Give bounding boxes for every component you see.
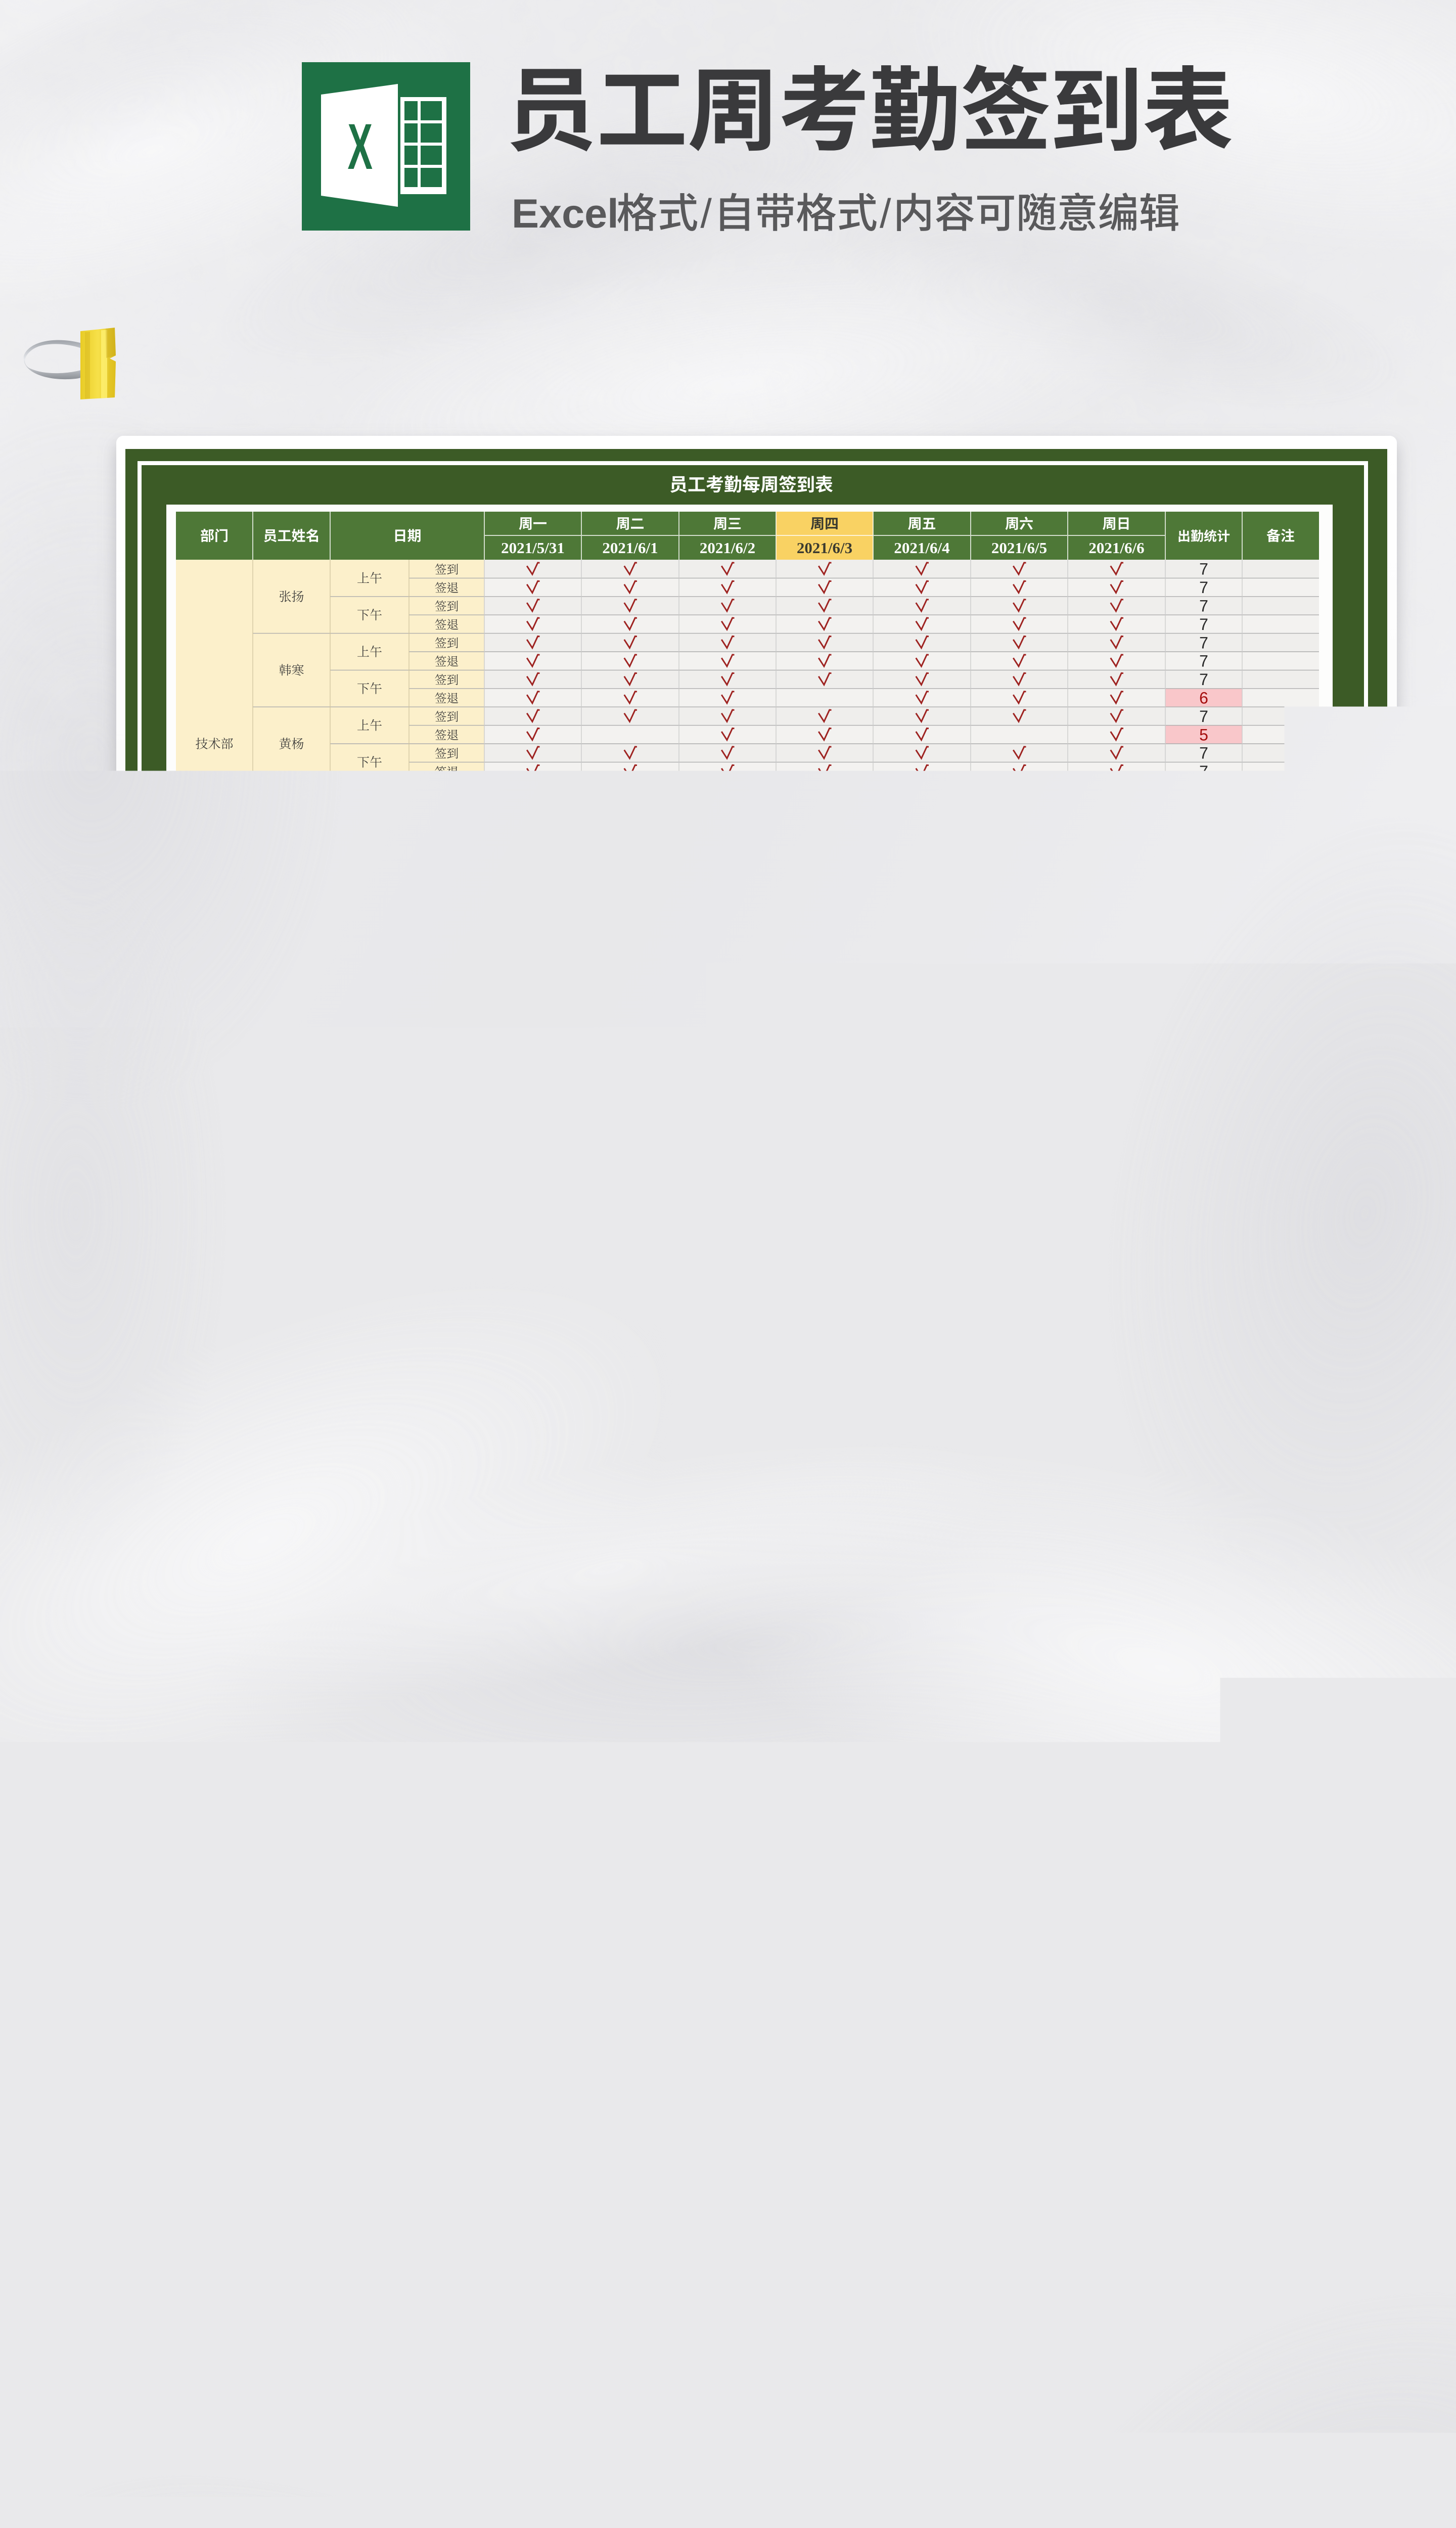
svg-text:6: 6 bbox=[1199, 891, 1208, 910]
svg-text:X: X bbox=[347, 111, 373, 183]
svg-text:6: 6 bbox=[1199, 1020, 1208, 1039]
svg-text:5: 5 bbox=[1161, 2086, 1170, 2103]
svg-text:7: 7 bbox=[1161, 2344, 1170, 2361]
svg-text:6: 6 bbox=[1161, 1975, 1170, 1992]
svg-text:5: 5 bbox=[1161, 2197, 1170, 2214]
svg-text:7: 7 bbox=[1161, 2234, 1170, 2250]
svg-text:7: 7 bbox=[1161, 1938, 1170, 1955]
svg-text:2021/6/6: 2021/6/6 bbox=[1088, 539, 1144, 557]
svg-text:7: 7 bbox=[1161, 1920, 1170, 1936]
svg-text:7: 7 bbox=[1199, 854, 1208, 873]
svg-text:7: 7 bbox=[1161, 1994, 1170, 2010]
svg-text:7: 7 bbox=[1199, 1186, 1208, 1204]
svg-text:5: 5 bbox=[1161, 2418, 1170, 2435]
svg-text:7: 7 bbox=[1161, 1846, 1170, 1863]
svg-text:5: 5 bbox=[1161, 2012, 1170, 2029]
svg-text:7: 7 bbox=[1161, 2473, 1170, 2490]
svg-text:7: 7 bbox=[1199, 670, 1208, 689]
svg-text:6: 6 bbox=[1161, 2326, 1170, 2342]
svg-text:7: 7 bbox=[1199, 1259, 1208, 1278]
svg-text:5: 5 bbox=[1199, 726, 1208, 744]
svg-text:7: 7 bbox=[1199, 1278, 1208, 1296]
svg-text:7: 7 bbox=[1199, 634, 1208, 652]
svg-text:7: 7 bbox=[1161, 1902, 1170, 1918]
svg-text:7: 7 bbox=[1199, 1112, 1208, 1131]
svg-text:7: 7 bbox=[1161, 2510, 1170, 2527]
svg-text:7: 7 bbox=[1199, 873, 1208, 891]
svg-text:7: 7 bbox=[1161, 1865, 1170, 1881]
svg-text:/: / bbox=[700, 191, 712, 237]
svg-text:7: 7 bbox=[1161, 2160, 1170, 2177]
svg-text:7: 7 bbox=[1161, 2215, 1170, 2232]
svg-text:7: 7 bbox=[1199, 1057, 1208, 1075]
svg-text:2021/6/1: 2021/6/1 bbox=[602, 539, 658, 557]
svg-text:6: 6 bbox=[1161, 2363, 1170, 2379]
svg-text:7: 7 bbox=[1161, 2049, 1170, 2066]
svg-text:2021/6/4: 2021/6/4 bbox=[869, 1825, 921, 1841]
svg-text:7: 7 bbox=[1161, 1957, 1170, 1973]
svg-text:7: 7 bbox=[1161, 2381, 1170, 2398]
svg-text:7: 7 bbox=[1161, 2455, 1170, 2472]
svg-text:7: 7 bbox=[1161, 2492, 1170, 2509]
svg-text:/: / bbox=[880, 191, 891, 237]
svg-text:2021/6/4: 2021/6/4 bbox=[894, 539, 949, 557]
svg-text:7: 7 bbox=[1161, 2123, 1170, 2140]
svg-text:7: 7 bbox=[1199, 707, 1208, 726]
svg-text:2021/5/31: 2021/5/31 bbox=[492, 1825, 552, 1841]
svg-text:Excel: Excel bbox=[512, 191, 619, 237]
svg-text:7: 7 bbox=[1199, 560, 1208, 578]
svg-text:7: 7 bbox=[1161, 2141, 1170, 2158]
svg-text:7: 7 bbox=[1161, 2104, 1170, 2121]
svg-text:7: 7 bbox=[1199, 946, 1208, 965]
svg-text:7: 7 bbox=[1199, 928, 1208, 946]
svg-text:2021/6/5: 2021/6/5 bbox=[991, 539, 1047, 557]
svg-text:7: 7 bbox=[1161, 2067, 1170, 2084]
svg-text:7: 7 bbox=[1161, 2252, 1170, 2269]
svg-text:7: 7 bbox=[1199, 1223, 1208, 1241]
svg-text:7: 7 bbox=[1161, 2289, 1170, 2306]
svg-text:7: 7 bbox=[1199, 1241, 1208, 1259]
svg-text:7: 7 bbox=[1199, 781, 1208, 799]
svg-text:2021/6/3: 2021/6/3 bbox=[776, 1825, 828, 1841]
svg-text:7: 7 bbox=[1161, 2400, 1170, 2416]
svg-text:5: 5 bbox=[1199, 1131, 1208, 1149]
svg-text:6: 6 bbox=[1199, 689, 1208, 707]
svg-text:7: 7 bbox=[1199, 1002, 1208, 1020]
svg-text:7: 7 bbox=[1199, 965, 1208, 983]
svg-text:5: 5 bbox=[1199, 799, 1208, 818]
svg-text:2021/6/1: 2021/6/1 bbox=[589, 1825, 641, 1841]
svg-text:7: 7 bbox=[1199, 836, 1208, 854]
svg-text:7: 7 bbox=[1199, 983, 1208, 1002]
svg-text:7: 7 bbox=[1161, 1883, 1170, 1900]
svg-text:7: 7 bbox=[1199, 818, 1208, 836]
svg-text:7: 7 bbox=[1199, 762, 1208, 781]
svg-text:2021/6/3: 2021/6/3 bbox=[797, 539, 852, 557]
svg-text:6: 6 bbox=[1161, 2178, 1170, 2195]
svg-text:7: 7 bbox=[1161, 2030, 1170, 2047]
svg-text:7: 7 bbox=[1199, 1204, 1208, 1223]
svg-text:6: 6 bbox=[1199, 1075, 1208, 1094]
svg-text:7: 7 bbox=[1199, 597, 1208, 615]
svg-text:7: 7 bbox=[1161, 2271, 1170, 2287]
svg-text:7: 7 bbox=[1199, 652, 1208, 670]
svg-text:2021/6/6: 2021/6/6 bbox=[1055, 1825, 1107, 1841]
svg-text:2021/5/31: 2021/5/31 bbox=[501, 539, 565, 557]
svg-text:7: 7 bbox=[1199, 1149, 1208, 1167]
svg-text:2021/6/2: 2021/6/2 bbox=[682, 1825, 734, 1841]
svg-text:7: 7 bbox=[1199, 578, 1208, 597]
svg-text:7: 7 bbox=[1199, 615, 1208, 634]
svg-text:7: 7 bbox=[1199, 1167, 1208, 1186]
svg-text:6: 6 bbox=[1199, 1039, 1208, 1057]
svg-text:2021/6/2: 2021/6/2 bbox=[700, 539, 755, 557]
svg-text:7: 7 bbox=[1199, 1094, 1208, 1112]
svg-text:2021/6/5: 2021/6/5 bbox=[962, 1825, 1014, 1841]
svg-text:5: 5 bbox=[1199, 910, 1208, 928]
svg-text:7: 7 bbox=[1199, 744, 1208, 762]
svg-text:6: 6 bbox=[1161, 2308, 1170, 2324]
svg-text:7: 7 bbox=[1161, 2436, 1170, 2453]
